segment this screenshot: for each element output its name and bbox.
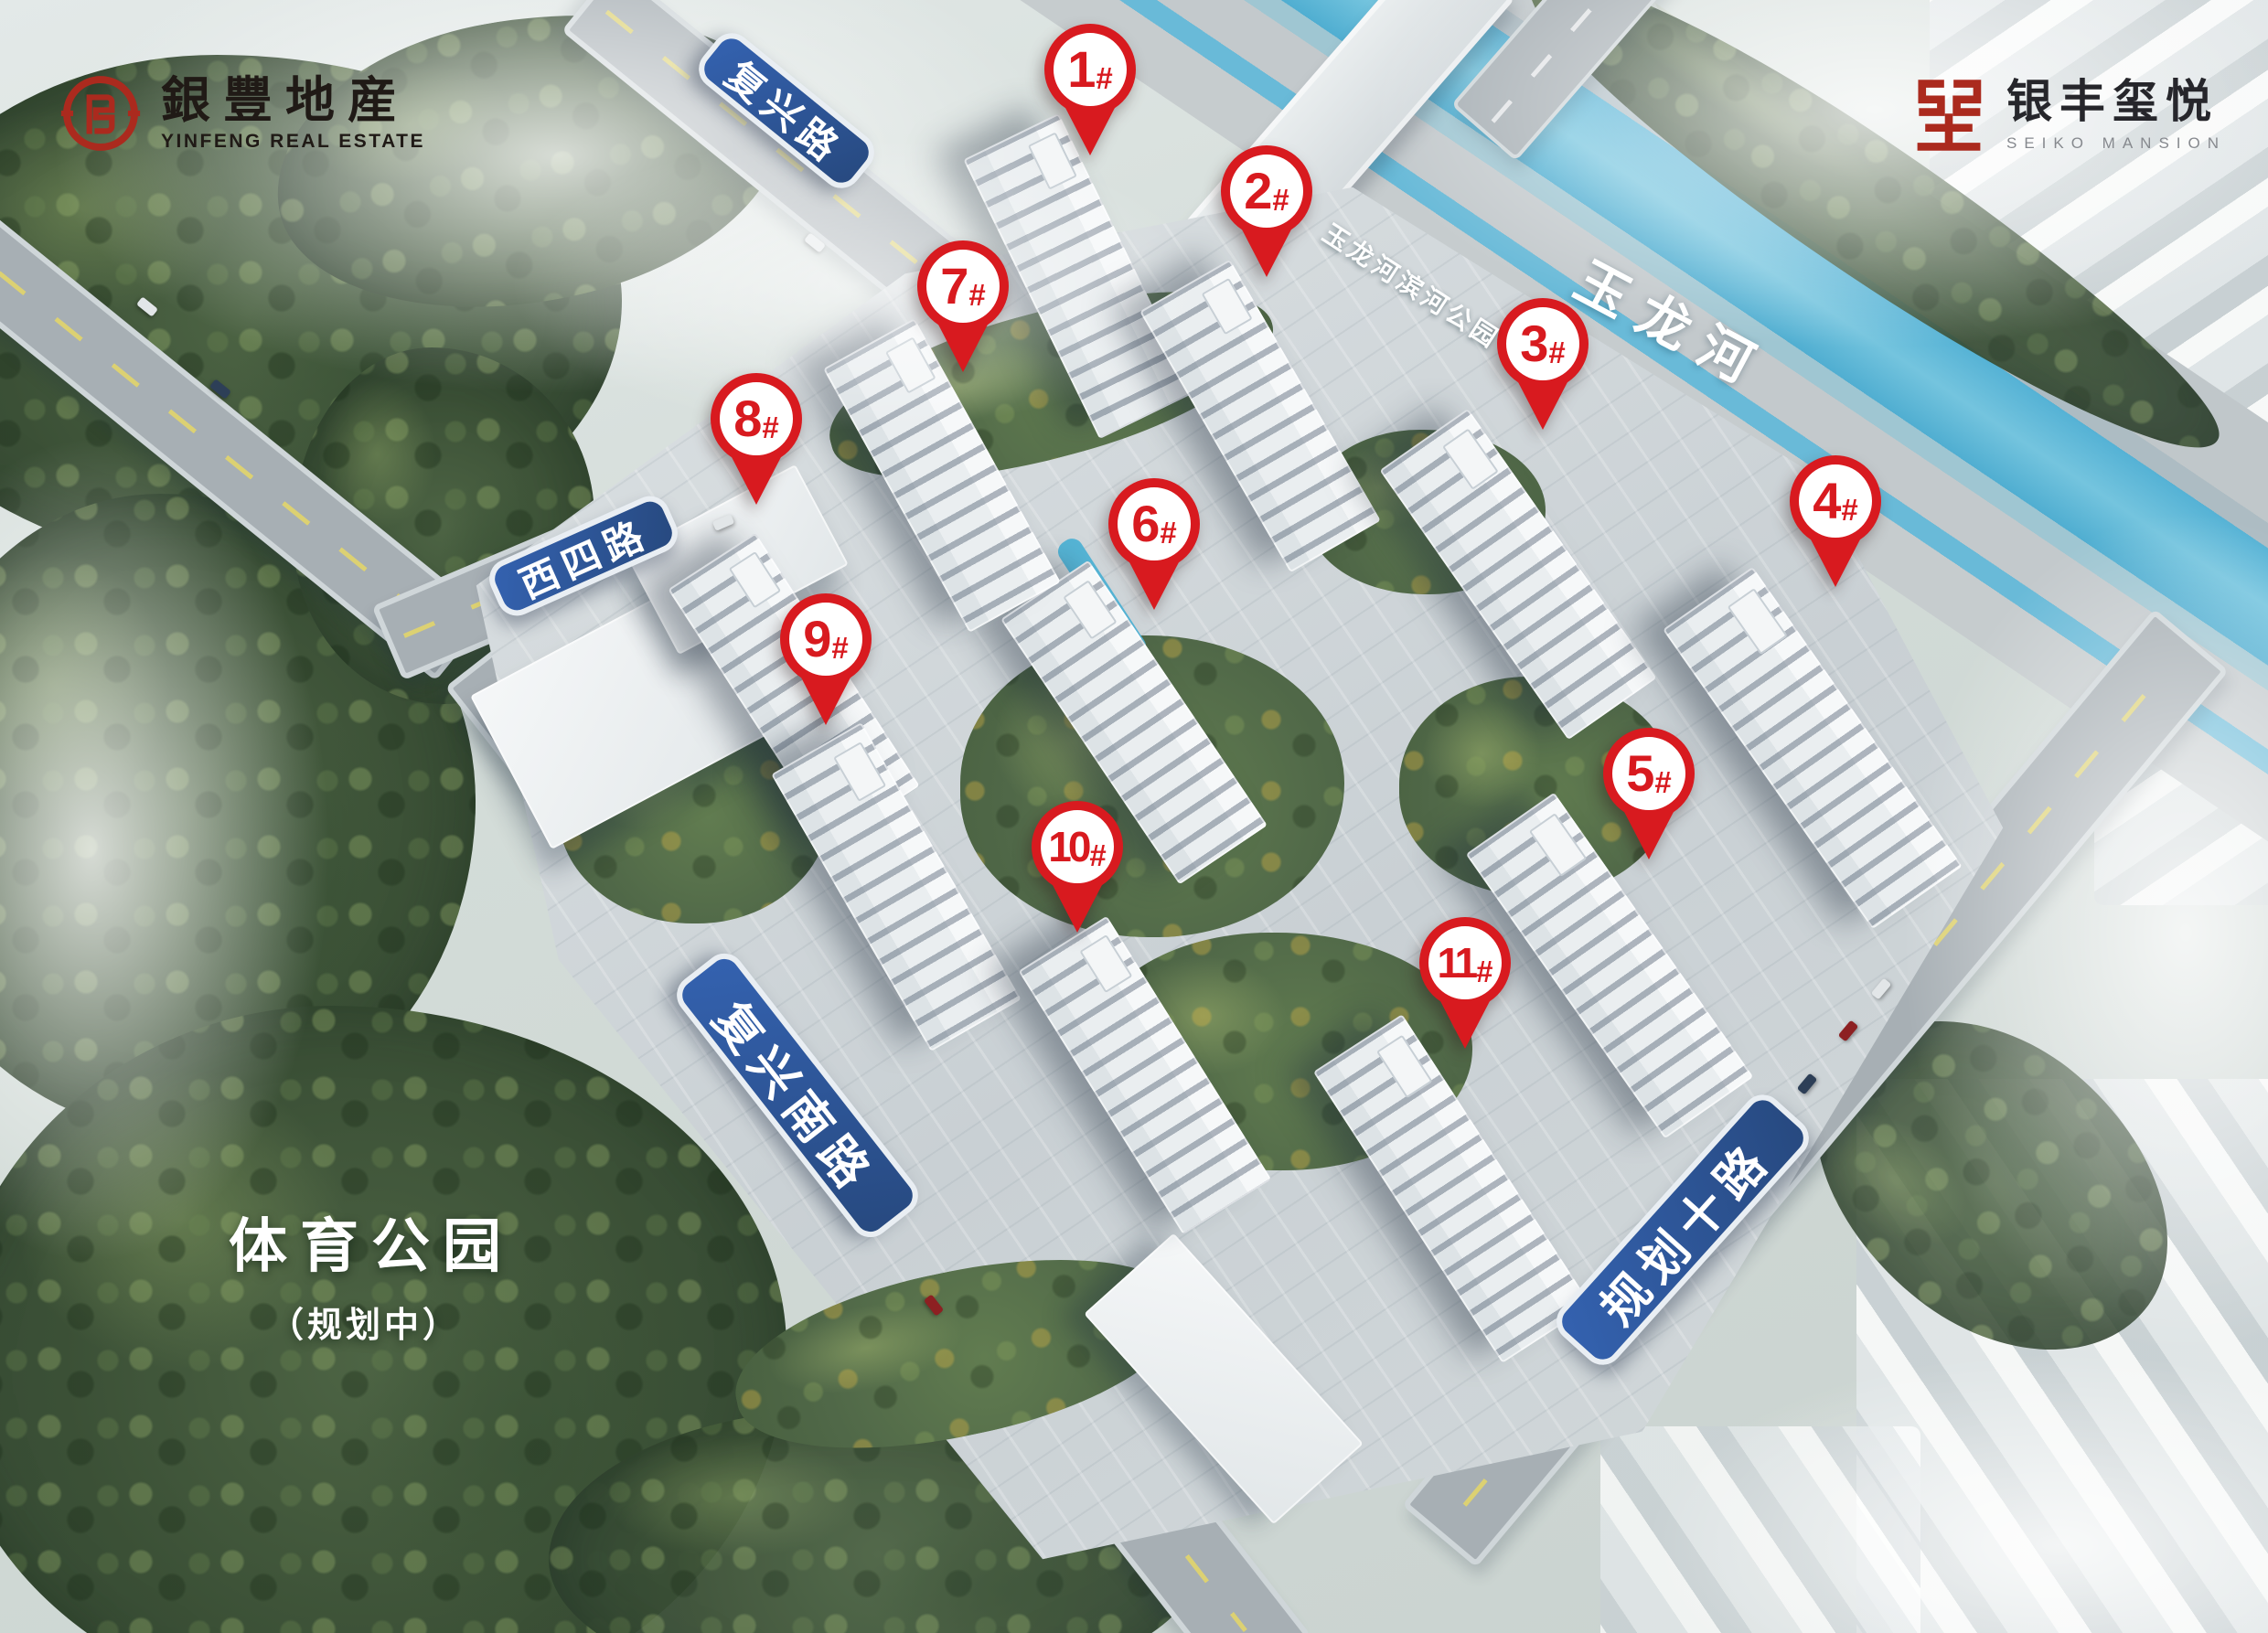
building-marker-number: 5	[1626, 748, 1653, 799]
project-name-en: SEIKO MANSION	[2006, 134, 2226, 153]
building-marker-number: 10	[1048, 826, 1087, 868]
building-marker-hash: #	[831, 633, 848, 663]
city-blocks	[1600, 1426, 1920, 1633]
building-marker-tail	[937, 323, 989, 372]
seiko-mansion-icon	[1910, 77, 1988, 154]
building-marker-number: 3	[1520, 318, 1546, 369]
building-marker-hash: #	[1548, 337, 1565, 368]
building-marker-tail	[1129, 560, 1180, 610]
building-marker-head: 8#	[711, 373, 802, 464]
building-marker: 4#	[1790, 455, 1881, 587]
sports-park-label: 体育公园 （规划中）	[229, 1200, 514, 1347]
building-marker-head: 11#	[1419, 917, 1511, 1009]
building-marker-number: 11	[1438, 942, 1475, 984]
building-marker-head: 7#	[917, 240, 1009, 332]
building-marker: 9#	[780, 593, 872, 725]
building-marker-head: 6#	[1108, 478, 1200, 570]
building-marker: 8#	[711, 373, 802, 505]
building-marker-number: 4	[1813, 475, 1839, 527]
building-marker-head: 4#	[1790, 455, 1881, 547]
building-marker-number: 2	[1244, 165, 1270, 217]
developer-name-en: YINFENG REAL ESTATE	[161, 131, 425, 153]
building-marker: 7#	[917, 240, 1009, 372]
building-marker-number: 6	[1131, 498, 1158, 550]
building-marker: 5#	[1603, 728, 1695, 859]
building-marker-head: 5#	[1603, 728, 1695, 819]
building-marker-number: 1	[1067, 44, 1094, 95]
project-name-cn: 银丰玺悦	[2006, 78, 2226, 126]
building-marker-tail	[1439, 999, 1491, 1049]
yinfeng-seal-icon	[60, 73, 141, 154]
building-marker-hash: #	[1476, 956, 1492, 987]
building-marker-tail	[1810, 538, 1861, 587]
masterplan-rendering: 复兴路 西四路 复兴南路 规划十路 玉龙河 玉龙河滨河公园 体育公园 （规划中）…	[0, 0, 2268, 1633]
building-marker: 6#	[1108, 478, 1200, 610]
building-marker-head: 2#	[1221, 145, 1312, 237]
building-marker-tail	[1623, 810, 1674, 859]
building-marker-head: 10#	[1032, 801, 1123, 892]
project-logo: 银丰玺悦 SEIKO MANSION	[1910, 77, 2226, 154]
building-marker-hash: #	[762, 412, 778, 443]
building-marker: 2#	[1221, 145, 1312, 277]
building-marker-tail	[800, 676, 851, 725]
building-marker-hash: #	[1160, 518, 1176, 548]
building-marker: 11#	[1419, 917, 1511, 1049]
sports-park-title: 体育公园	[229, 1200, 514, 1284]
building-marker-head: 1#	[1044, 24, 1136, 115]
building-marker-tail	[1517, 380, 1568, 430]
developer-name-cn: 銀豐地産	[161, 74, 425, 126]
building-marker-hash: #	[968, 280, 985, 310]
building-marker-hash: #	[1096, 63, 1112, 93]
building-marker-hash: #	[1841, 495, 1857, 525]
building-marker-tail	[1052, 883, 1103, 933]
building-marker-tail	[731, 455, 782, 505]
building-marker: 1#	[1044, 24, 1136, 155]
building-marker-hash: #	[1272, 185, 1289, 215]
building-marker-tail	[1241, 228, 1292, 277]
building-marker: 3#	[1497, 298, 1589, 430]
building-marker-number: 8	[733, 393, 760, 444]
building-marker-tail	[1064, 106, 1116, 155]
sports-park-status: （规划中）	[269, 1297, 514, 1347]
building-marker-number: 9	[803, 614, 829, 665]
building-marker: 10#	[1032, 801, 1123, 933]
building-marker-number: 7	[940, 261, 967, 312]
building-marker-hash: #	[1089, 840, 1106, 870]
building-marker-hash: #	[1654, 767, 1671, 797]
developer-logo: 銀豐地産 YINFENG REAL ESTATE	[60, 73, 425, 154]
building-marker-head: 9#	[780, 593, 872, 685]
